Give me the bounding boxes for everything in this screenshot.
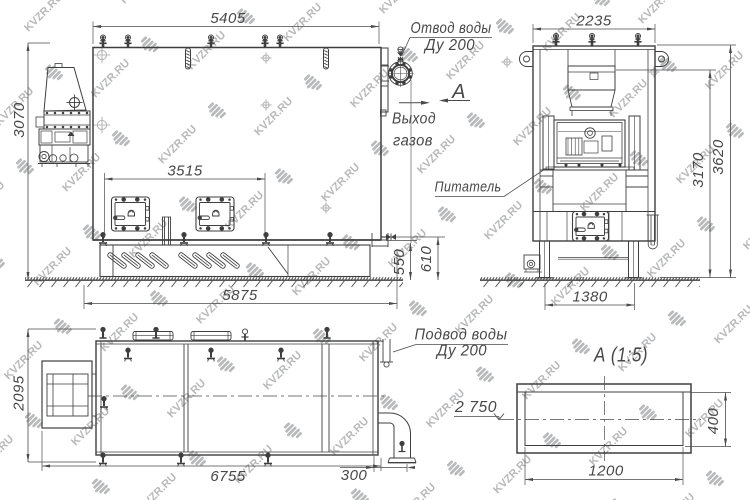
svg-text:1380: 1380 xyxy=(572,289,608,306)
svg-text:А: А xyxy=(451,81,466,103)
svg-text:KVZR.RU: KVZR.RU xyxy=(165,377,208,420)
svg-text:KVZR.RU: KVZR.RU xyxy=(377,0,420,16)
svg-text:3620: 3620 xyxy=(710,139,727,175)
svg-text:6755: 6755 xyxy=(210,468,246,485)
svg-text:1200: 1200 xyxy=(588,463,624,480)
svg-text:KVZR.RU: KVZR.RU xyxy=(0,179,7,222)
svg-text:KVZR.RU: KVZR.RU xyxy=(741,209,750,252)
svg-text:3170: 3170 xyxy=(690,152,707,188)
svg-text:А (1:5): А (1:5) xyxy=(593,345,648,367)
svg-text:Выход: Выход xyxy=(392,111,436,128)
svg-text:550: 550 xyxy=(391,249,408,276)
svg-text:KVZR.RU: KVZR.RU xyxy=(252,95,295,138)
svg-text:KVZR.RU: KVZR.RU xyxy=(645,237,688,280)
svg-text:KVZR.RU: KVZR.RU xyxy=(0,433,16,476)
svg-text:KVZR.RU: KVZR.RU xyxy=(60,151,103,194)
svg-text:5405: 5405 xyxy=(210,10,246,27)
svg-text:KVZR.RU: KVZR.RU xyxy=(636,0,679,26)
svg-text:2235: 2235 xyxy=(575,13,612,30)
svg-text:KVZR.RU: KVZR.RU xyxy=(482,199,525,242)
svg-text:Ду 200: Ду 200 xyxy=(435,343,487,360)
svg-text:газов: газов xyxy=(393,133,433,150)
svg-text:Отвод воды: Отвод воды xyxy=(411,20,492,37)
svg-text:610: 610 xyxy=(418,246,435,273)
svg-text:KVZR.RU: KVZR.RU xyxy=(607,77,650,120)
svg-text:3515: 3515 xyxy=(167,163,203,180)
svg-text:KVZR.RU: KVZR.RU xyxy=(127,217,170,260)
svg-text:KVZR.RU: KVZR.RU xyxy=(357,321,400,364)
svg-text:KVZR.RU: KVZR.RU xyxy=(712,303,750,346)
svg-text:KVZR.RU: KVZR.RU xyxy=(89,57,132,100)
svg-text:2 750: 2 750 xyxy=(454,399,497,416)
svg-text:Питатель: Питатель xyxy=(435,179,502,196)
svg-text:KVZR.RU: KVZR.RU xyxy=(69,405,112,448)
svg-text:Подвод воды: Подвод воды xyxy=(415,327,508,344)
svg-text:KVZR.RU: KVZR.RU xyxy=(578,171,621,214)
svg-text:KVZR.RU: KVZR.RU xyxy=(185,29,228,72)
svg-text:KVZR.RU: KVZR.RU xyxy=(261,349,304,392)
svg-text:5875: 5875 xyxy=(222,287,258,304)
svg-text:KVZR.RU: KVZR.RU xyxy=(348,67,391,110)
svg-text:KVZR.RU: KVZR.RU xyxy=(281,1,324,44)
svg-text:KVZR.RU: KVZR.RU xyxy=(520,359,563,402)
svg-text:KVZR.RU: KVZR.RU xyxy=(136,471,179,500)
svg-text:KVZR.RU: KVZR.RU xyxy=(319,161,362,204)
svg-text:KVZR.RU: KVZR.RU xyxy=(491,453,534,496)
svg-text:KVZR.RU: KVZR.RU xyxy=(156,123,199,166)
svg-text:2095: 2095 xyxy=(11,375,28,412)
svg-text:300: 300 xyxy=(341,467,368,484)
svg-text:KVZR.RU: KVZR.RU xyxy=(395,481,438,500)
svg-text:Ду 200: Ду 200 xyxy=(423,37,475,54)
svg-text:KVZR.RU: KVZR.RU xyxy=(118,0,161,6)
svg-text:400: 400 xyxy=(705,408,722,435)
svg-text:KVZR.RU: KVZR.RU xyxy=(98,311,141,354)
svg-text:3070: 3070 xyxy=(11,102,28,138)
svg-text:KVZR.RU: KVZR.RU xyxy=(654,491,697,500)
svg-text:KVZR.RU: KVZR.RU xyxy=(22,0,65,34)
